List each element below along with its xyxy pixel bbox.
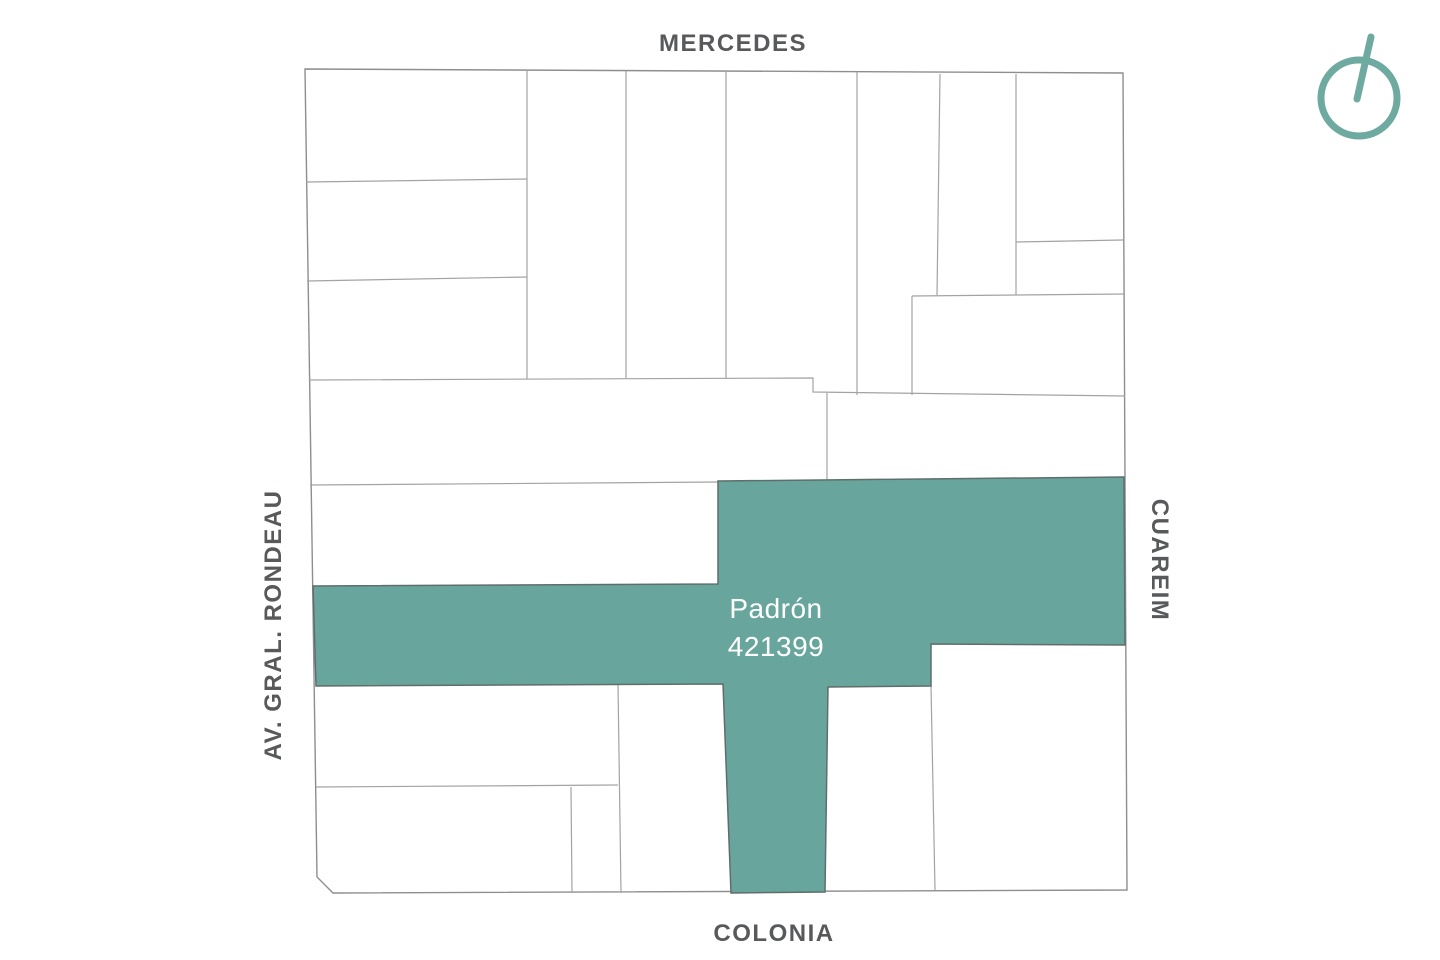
parcel-number: 421399 <box>728 631 824 662</box>
street-label-bottom: COLONIA <box>713 920 834 947</box>
street-label-left: AV. GRAL. RONDEAU <box>260 490 287 761</box>
compass-needle <box>1357 37 1371 99</box>
street-label-right: CUAREIM <box>1146 499 1173 622</box>
parcel-label-title: Padrón <box>729 593 822 624</box>
north-compass-icon <box>1321 37 1397 136</box>
street-label-top: MERCEDES <box>659 30 807 57</box>
cadastral-map: Padrón 421399 MERCEDES COLONIA AV. GRAL.… <box>0 0 1440 960</box>
cadastral-map-page: Padrón 421399 MERCEDES COLONIA AV. GRAL.… <box>0 0 1440 960</box>
